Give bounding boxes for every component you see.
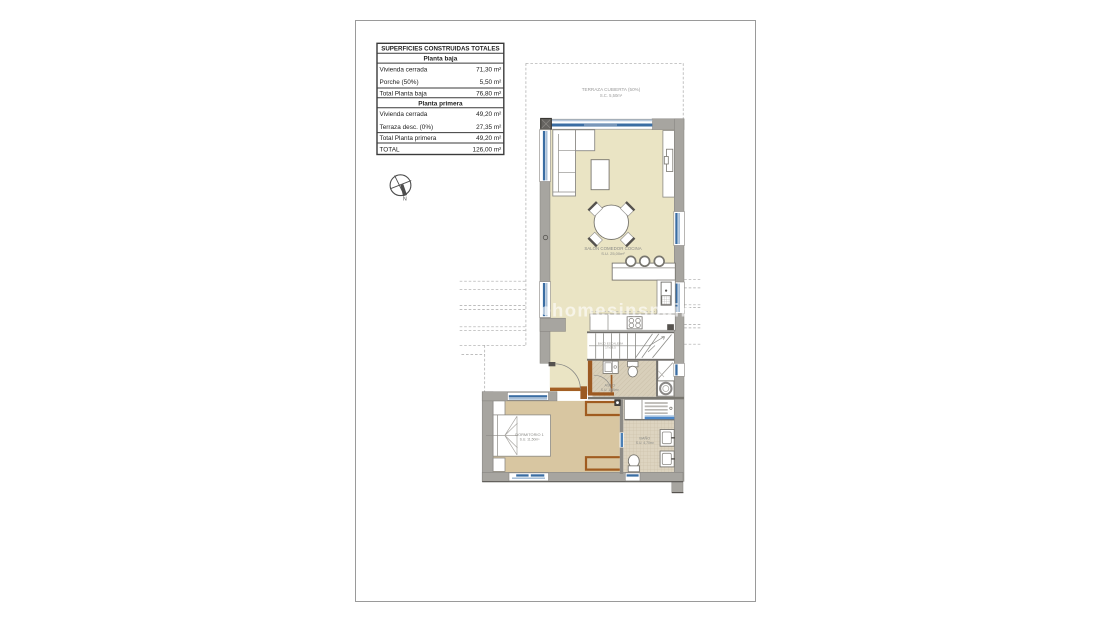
- svg-text:Total Planta baja: Total Planta baja: [380, 90, 428, 97]
- svg-text:76,80 m²: 76,80 m²: [476, 90, 501, 97]
- svg-text:Porche (50%): Porche (50%): [380, 79, 419, 86]
- svg-text:S.U. 25,00m²: S.U. 25,00m²: [601, 251, 625, 256]
- svg-text:DORMITORIO 1: DORMITORIO 1: [515, 432, 543, 437]
- svg-text:27,35 m²: 27,35 m²: [476, 124, 501, 131]
- svg-text:49,20 m²: 49,20 m²: [476, 111, 501, 118]
- svg-text:TOTAL: TOTAL: [380, 147, 400, 154]
- svg-text:Planta primera: Planta primera: [418, 100, 463, 107]
- svg-text:17x18,5: 17x18,5: [605, 346, 616, 350]
- svg-text:71,30 m²: 71,30 m²: [476, 67, 501, 74]
- svg-text:Vivienda cerrada: Vivienda cerrada: [380, 67, 428, 74]
- svg-text:N: N: [403, 197, 407, 203]
- svg-text:homesinspain: homesinspain: [552, 300, 693, 321]
- svg-text:Terraza desc. (0%): Terraza desc. (0%): [380, 124, 434, 131]
- svg-text:S.U. 4,70m²: S.U. 4,70m²: [636, 441, 655, 445]
- svg-text:BAÑO: BAÑO: [639, 436, 650, 441]
- svg-text:Total Planta primera: Total Planta primera: [380, 135, 437, 142]
- svg-text:TERRAZA CUBIERTA (50%): TERRAZA CUBIERTA (50%): [582, 87, 641, 92]
- svg-text:S.C. 5,50m²: S.C. 5,50m²: [600, 93, 623, 98]
- svg-text:Vivienda cerrada: Vivienda cerrada: [380, 111, 428, 118]
- svg-text:Planta baja: Planta baja: [424, 56, 458, 63]
- svg-text:SUPERFICIES CONSTRUIDAS TOTALE: SUPERFICIES CONSTRUIDAS TOTALES: [381, 46, 499, 53]
- svg-text:5,50 m²: 5,50 m²: [480, 79, 502, 86]
- svg-text:S.U. 11,50m²: S.U. 11,50m²: [520, 438, 541, 442]
- svg-text:126,00 m²: 126,00 m²: [473, 147, 502, 154]
- svg-text:49,20 m²: 49,20 m²: [476, 135, 501, 142]
- svg-text:ASEO: ASEO: [605, 384, 616, 388]
- svg-text:S.U. 1,85m²: S.U. 1,85m²: [601, 388, 620, 392]
